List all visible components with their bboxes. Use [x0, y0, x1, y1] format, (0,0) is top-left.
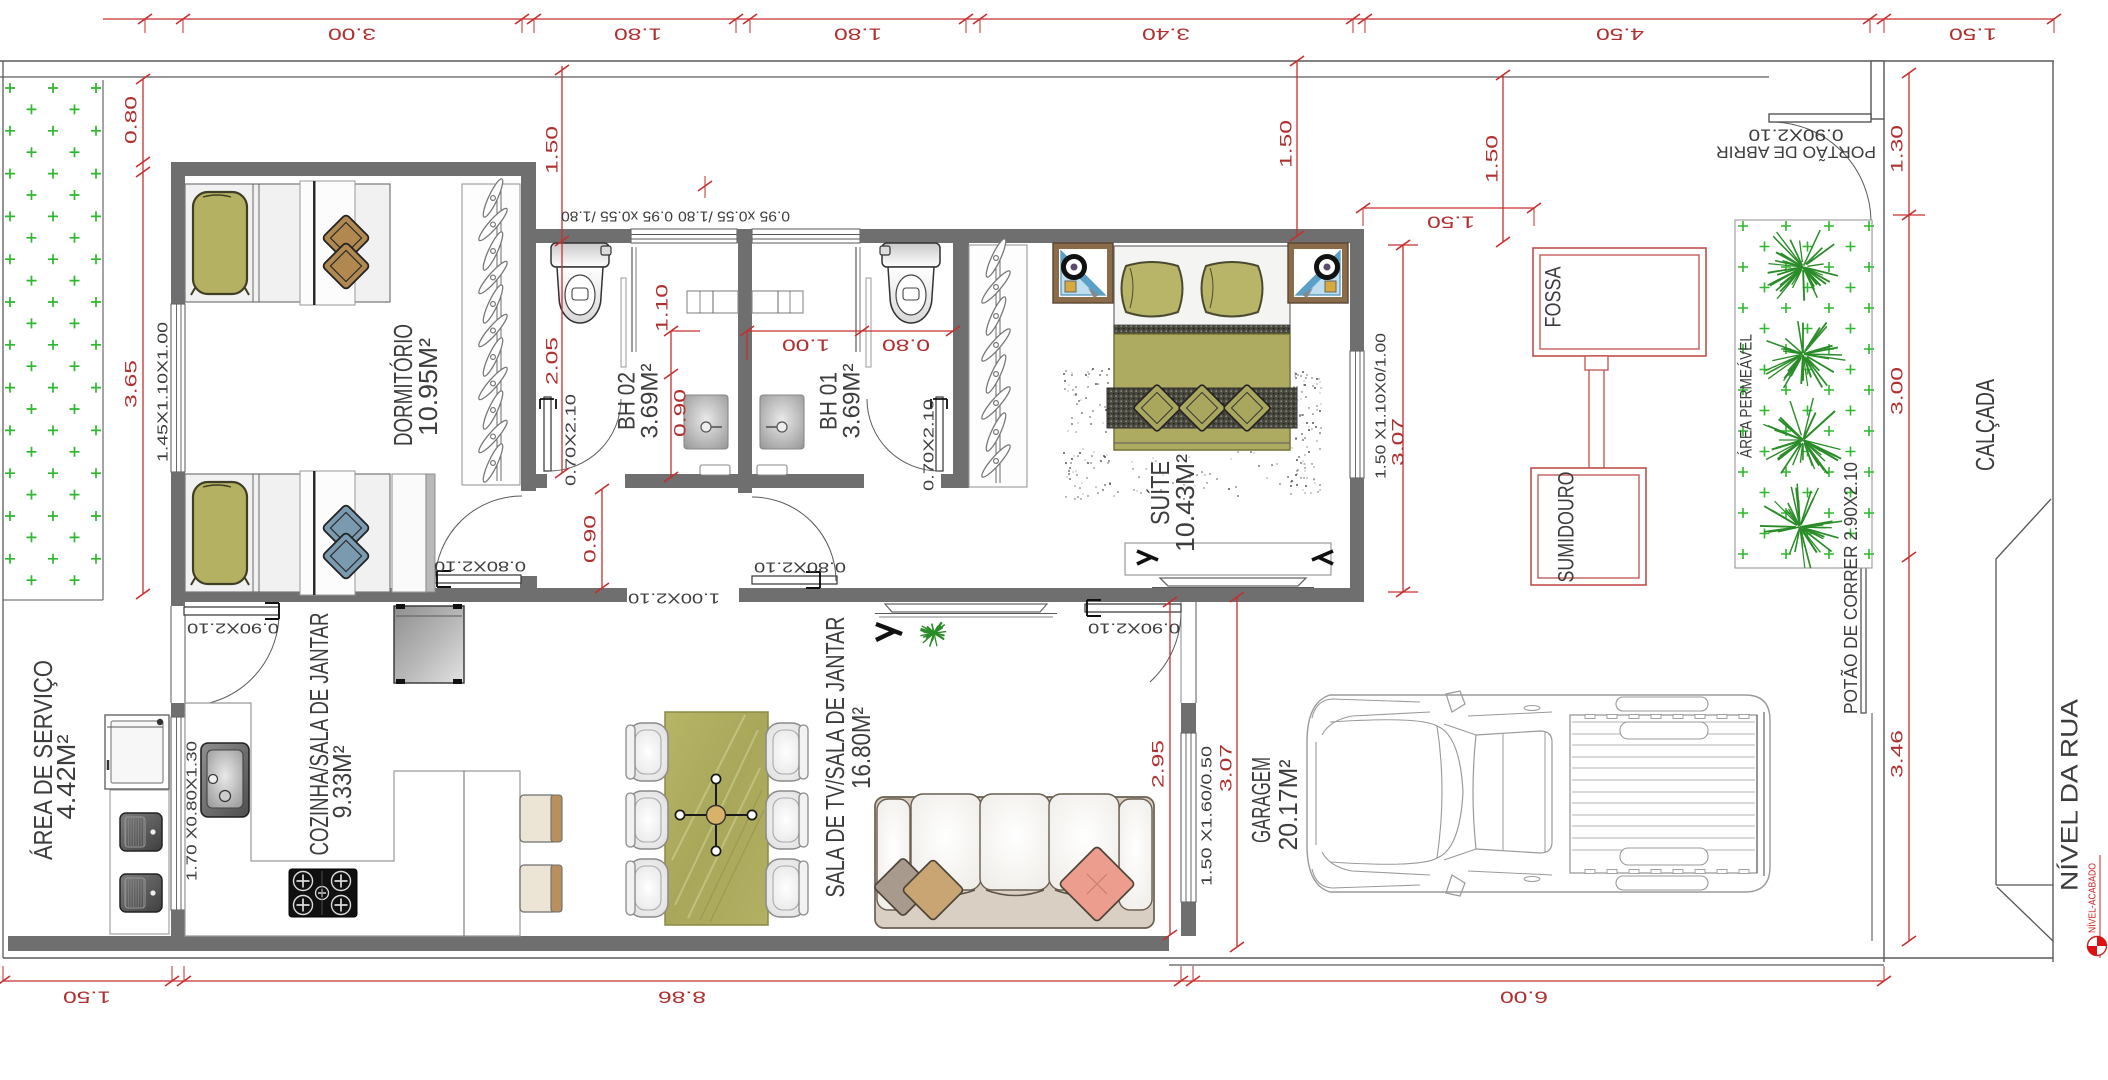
svg-text:3.00: 3.00 [328, 25, 376, 44]
svg-text:0.90: 0.90 [581, 515, 600, 563]
svg-text:20.17M²: 20.17M² [1273, 759, 1303, 850]
svg-text:1.00X2.10: 1.00X2.10 [628, 590, 720, 607]
svg-text:10.95M²: 10.95M² [413, 338, 443, 436]
svg-text:8.86: 8.86 [658, 988, 706, 1007]
svg-text:0.95 x0.55 /1.80: 0.95 x0.55 /1.80 [678, 208, 790, 225]
svg-text:1.50 X1.10X0/1.00: 1.50 X1.10X0/1.00 [1373, 333, 1390, 479]
svg-text:3.40: 3.40 [1142, 25, 1190, 44]
svg-text:3.46: 3.46 [1888, 730, 1907, 778]
svg-text:3.69M²: 3.69M² [637, 364, 664, 439]
svg-text:SUMIDOURO: SUMIDOURO [1554, 472, 1579, 583]
svg-text:1.45X1.10X1.00: 1.45X1.10X1.00 [155, 322, 172, 462]
svg-text:1.70 X0.80X1.30: 1.70 X0.80X1.30 [184, 741, 201, 881]
svg-text:0.90X2.10: 0.90X2.10 [187, 620, 279, 637]
svg-text:0.80X2.10: 0.80X2.10 [754, 559, 846, 576]
svg-text:1.50: 1.50 [1277, 120, 1296, 168]
svg-text:CALÇADA: CALÇADA [1970, 379, 2000, 471]
svg-text:NÍVEL-ACABADO: NÍVEL-ACABADO [2086, 863, 2099, 933]
svg-text:POTÃO DE CORRER 2.90X2.10: POTÃO DE CORRER 2.90X2.10 [1840, 462, 1861, 714]
svg-text:3.07: 3.07 [1389, 418, 1408, 466]
svg-text:16.80M²: 16.80M² [846, 707, 876, 789]
svg-text:1.80: 1.80 [614, 25, 662, 44]
svg-text:3.69M²: 3.69M² [839, 364, 866, 439]
svg-text:3.00: 3.00 [1888, 367, 1907, 415]
svg-text:4.50: 4.50 [1596, 25, 1644, 44]
svg-text:6.00: 6.00 [1500, 988, 1548, 1007]
svg-text:1.50: 1.50 [1427, 213, 1475, 232]
svg-text:3.07: 3.07 [1217, 744, 1236, 792]
svg-text:0.80: 0.80 [122, 96, 141, 144]
svg-text:9.33M²: 9.33M² [327, 745, 357, 818]
svg-text:1.30: 1.30 [1888, 125, 1907, 173]
svg-text:3.65: 3.65 [122, 360, 141, 408]
svg-text:0.70X2.10: 0.70X2.10 [563, 394, 580, 486]
svg-text:1.50: 1.50 [543, 126, 562, 174]
svg-text:FOSSA: FOSSA [1541, 266, 1566, 327]
svg-text:0.90: 0.90 [671, 389, 690, 437]
svg-text:1.50 X1.60/0.50: 1.50 X1.60/0.50 [1199, 746, 1216, 886]
svg-text:1.10: 1.10 [653, 284, 672, 332]
svg-text:2.05: 2.05 [543, 337, 562, 385]
svg-text:1.50: 1.50 [63, 988, 111, 1007]
svg-text:1.80: 1.80 [834, 25, 882, 44]
svg-text:4.42M²: 4.42M² [51, 734, 81, 819]
svg-text:ÁREA PERMEÁVEL: ÁREA PERMEÁVEL [1737, 334, 1756, 458]
svg-text:2.95: 2.95 [1149, 740, 1168, 788]
svg-text:10.43M²: 10.43M² [1170, 454, 1200, 552]
svg-text:0.70X2.10: 0.70X2.10 [921, 399, 938, 491]
svg-text:0.90X2.10: 0.90X2.10 [1749, 126, 1844, 145]
svg-text:0.80: 0.80 [882, 336, 930, 355]
svg-text:1.00: 1.00 [782, 336, 830, 355]
svg-text:NÍVEL DA RUA: NÍVEL DA RUA [2057, 699, 2084, 891]
svg-text:0.95 x0.55 /1.80: 0.95 x0.55 /1.80 [561, 208, 673, 225]
svg-text:1.50: 1.50 [1483, 135, 1502, 183]
svg-text:0.90X2.10: 0.90X2.10 [1088, 620, 1180, 637]
svg-text:1.50: 1.50 [1949, 25, 1997, 44]
svg-text:0.80X2.10: 0.80X2.10 [434, 558, 526, 575]
svg-text:GARAGEM: GARAGEM [1246, 757, 1276, 843]
